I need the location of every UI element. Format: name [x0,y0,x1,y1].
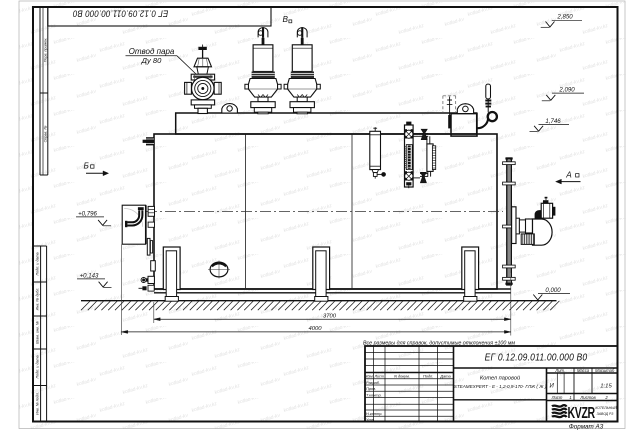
svg-text:1:15: 1:15 [600,384,612,390]
svg-text:Инв. № подл.: Инв. № подл. [35,392,39,415]
svg-text:Лист: Лист [373,374,384,378]
svg-text:Б: Б [84,162,90,171]
svg-text:Изм: Изм [366,374,373,378]
svg-text:2,090: 2,090 [558,87,575,94]
svg-text:Листов: Листов [579,395,596,400]
svg-text:Подп. и дата: Подп. и дата [35,355,39,378]
svg-text:Формат А3: Формат А3 [569,423,604,430]
svg-text:Инв. № дубл.: Инв. № дубл. [35,288,39,311]
svg-text:Перв. примен.: Перв. примен. [43,38,47,63]
svg-text:2,850: 2,850 [556,14,573,21]
svg-text:Т.контр.: Т.контр. [366,393,382,398]
svg-text:ЕГ 0.12.09.011.00.000 В0: ЕГ 0.12.09.011.00.000 В0 [73,8,169,19]
svg-text:Дата: Дата [439,373,451,378]
svg-text:Подп.: Подп. [423,373,433,378]
svg-text:Подп. и дата: Подп. и дата [35,252,39,275]
svg-text:ЗАВОД РЗ: ЗАВОД РЗ [597,412,615,416]
svg-text:0,000: 0,000 [545,287,561,294]
svg-text:А: А [565,170,572,179]
svg-text:Масштаб: Масштаб [595,368,615,373]
svg-text:Справ. №: Справ. № [43,126,47,143]
svg-text:1: 1 [569,395,571,400]
svg-text:3700: 3700 [323,313,337,319]
svg-text:Пров.: Пров. [366,386,376,391]
svg-text:1,746: 1,746 [545,118,561,125]
svg-text:Разраб.: Разраб. [366,380,380,385]
svg-text:STEAMEXPERT - Е - 1,2-0,9-170-: STEAMEXPERT - Е - 1,2-0,9-170- ГЛЖ ( Ж ) [454,384,547,389]
svg-text:+0,143: +0,143 [80,272,99,279]
svg-text:Ду 80: Ду 80 [141,56,163,65]
svg-text:Н.контр.: Н.контр. [366,411,382,416]
svg-text:Котел паровой: Котел паровой [480,375,520,382]
svg-text:4000: 4000 [308,326,322,332]
svg-text:Лист: Лист [551,395,563,400]
svg-text:В: В [282,15,288,24]
svg-text:ЕГ 0.12.09.011.00.000 В0: ЕГ 0.12.09.011.00.000 В0 [485,351,588,363]
svg-text:Отвод пара: Отвод пара [129,47,175,56]
svg-text:KVZR: KVZR [568,404,596,422]
svg-text:+0,796: +0,796 [78,210,97,217]
svg-text:Лит.: Лит. [554,368,565,373]
svg-text:И: И [550,384,555,390]
svg-text:N докум.: N докум. [394,373,410,378]
svg-text:Утв.: Утв. [366,417,375,422]
svg-text:Взам. инв. №: Взам. инв. № [35,321,39,344]
svg-text:Масса: Масса [577,368,590,373]
svg-text:КОТЕЛЬНЫЙ: КОТЕЛЬНЫЙ [595,406,617,410]
